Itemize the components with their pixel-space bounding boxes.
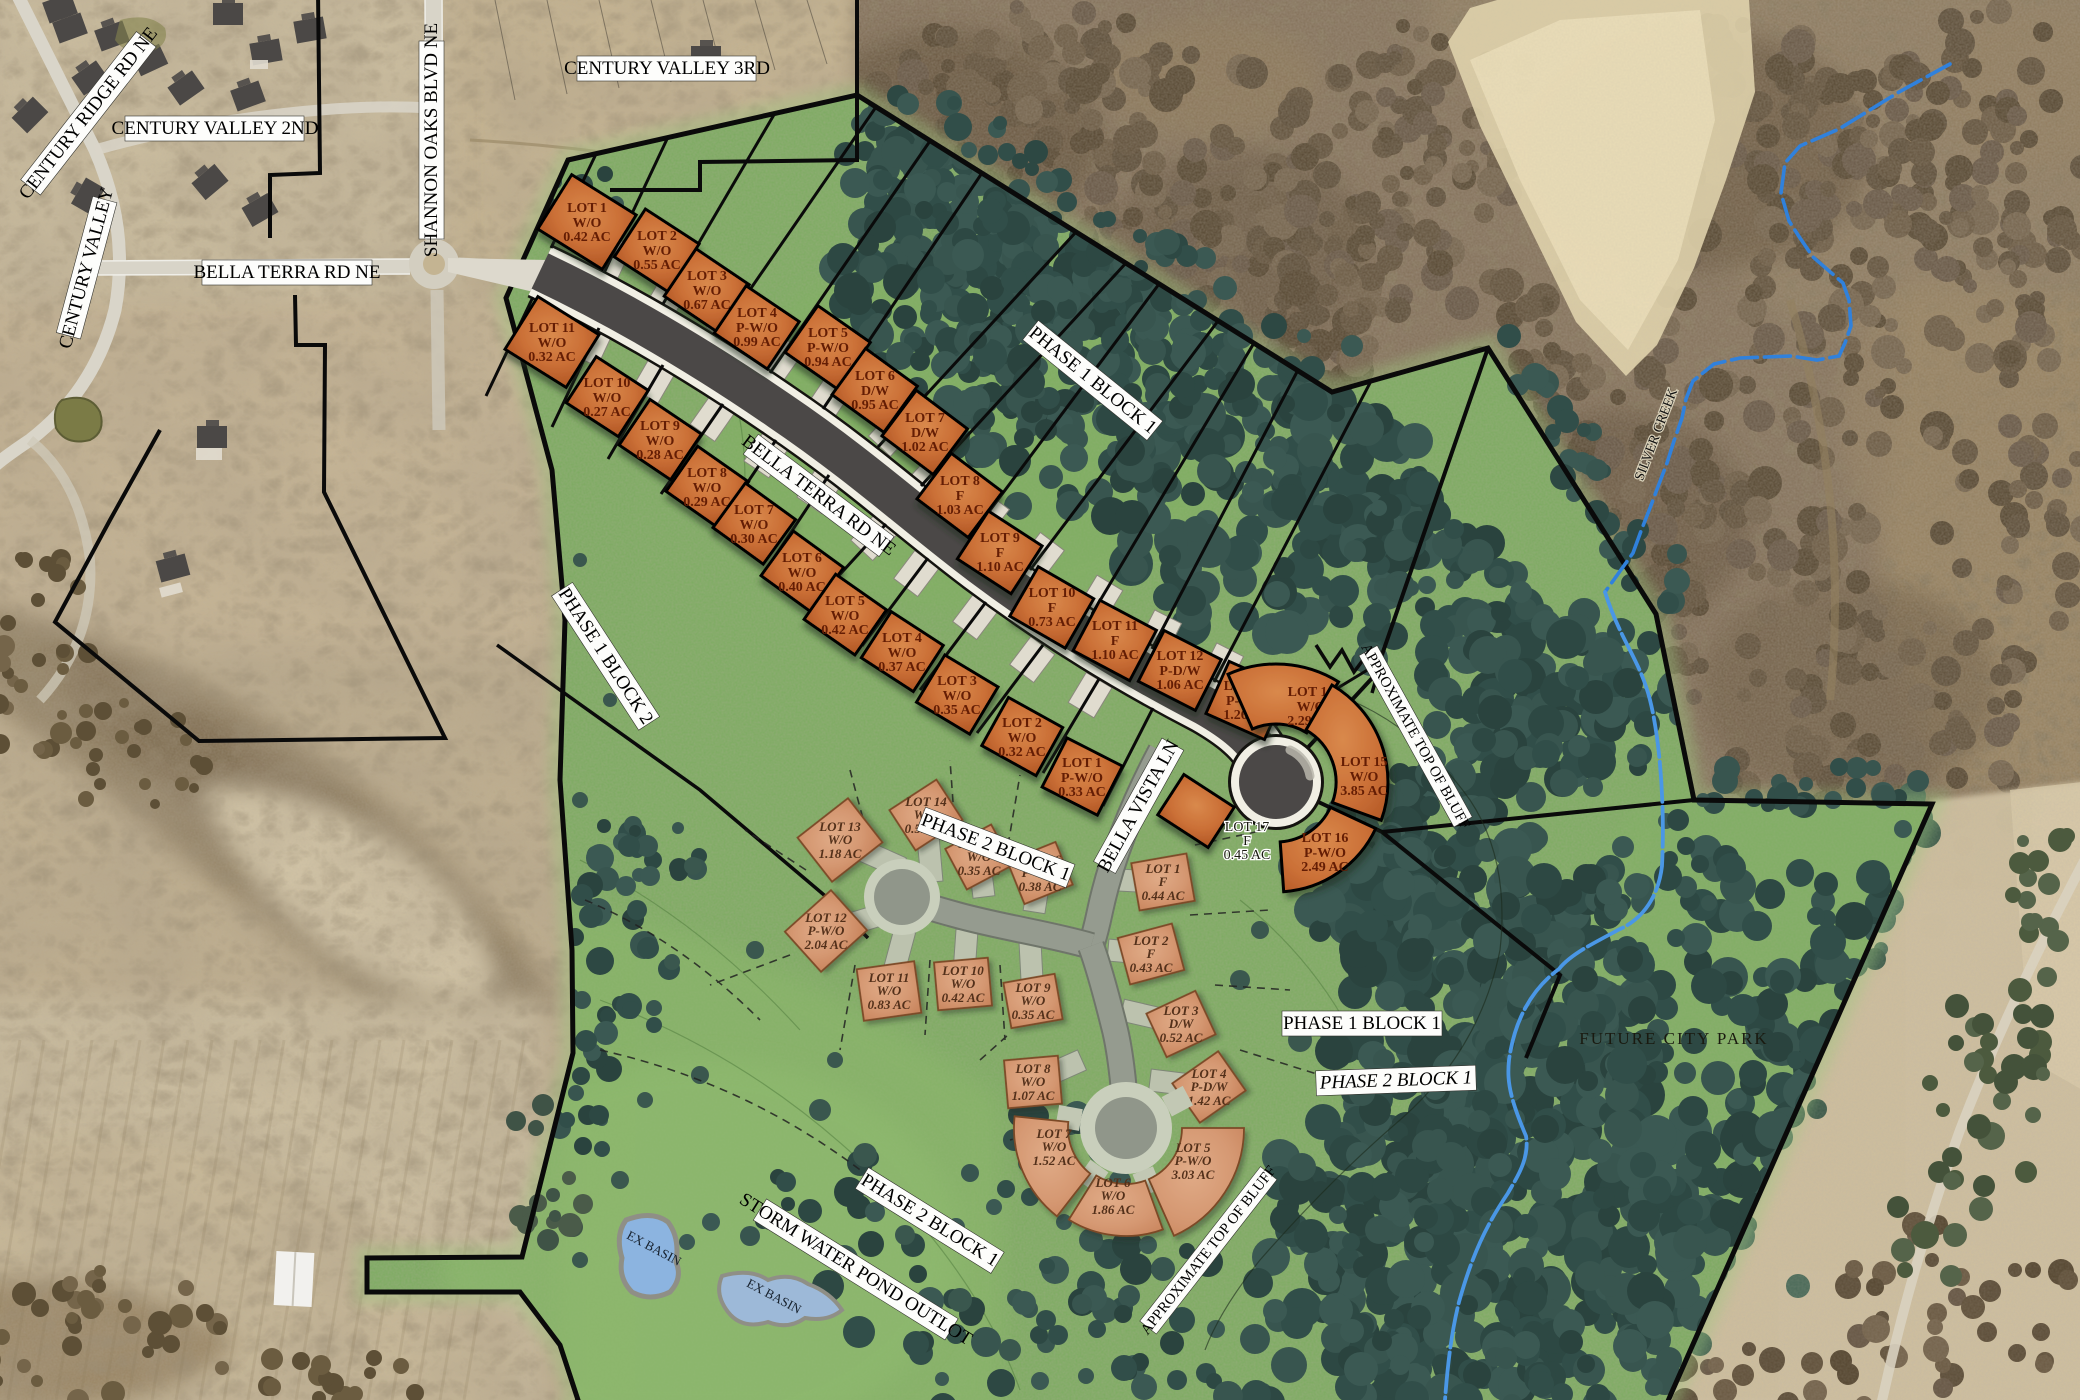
svg-text:LOT 12P-D/W1.06 AC: LOT 12P-D/W1.06 AC xyxy=(1156,649,1203,693)
svg-text:SHANNON OAKS BLVD NE: SHANNON OAKS BLVD NE xyxy=(421,23,442,257)
svg-text:CENTURY VALLEY 3RD: CENTURY VALLEY 3RD xyxy=(564,58,770,79)
svg-text:LOT 4P-W/O0.99 AC: LOT 4P-W/O0.99 AC xyxy=(733,306,780,350)
svg-text:PHASE 1 BLOCK 1: PHASE 1 BLOCK 1 xyxy=(1283,1013,1441,1034)
svg-text:BELLA TERRA RD NE: BELLA TERRA RD NE xyxy=(193,262,380,283)
svg-text:LOT 1P-W/O0.33 AC: LOT 1P-W/O0.33 AC xyxy=(1058,756,1105,800)
svg-text:LOT 12P-W/O2.04 AC: LOT 12P-W/O2.04 AC xyxy=(804,910,848,952)
svg-text:FUTURE CITY PARK: FUTURE CITY PARK xyxy=(1579,1029,1768,1048)
svg-text:LOT 4P-D/W1.42 AC: LOT 4P-D/W1.42 AC xyxy=(1188,1066,1231,1108)
svg-text:LOT 16P-W/O2.49 AC: LOT 16P-W/O2.49 AC xyxy=(1301,831,1348,875)
svg-text:CENTURY VALLEY 2ND: CENTURY VALLEY 2ND xyxy=(112,118,319,139)
svg-text:LOT 5P-W/O0.94 AC: LOT 5P-W/O0.94 AC xyxy=(804,326,851,370)
svg-text:LOT 5P-W/O3.03 AC: LOT 5P-W/O3.03 AC xyxy=(1171,1140,1215,1182)
